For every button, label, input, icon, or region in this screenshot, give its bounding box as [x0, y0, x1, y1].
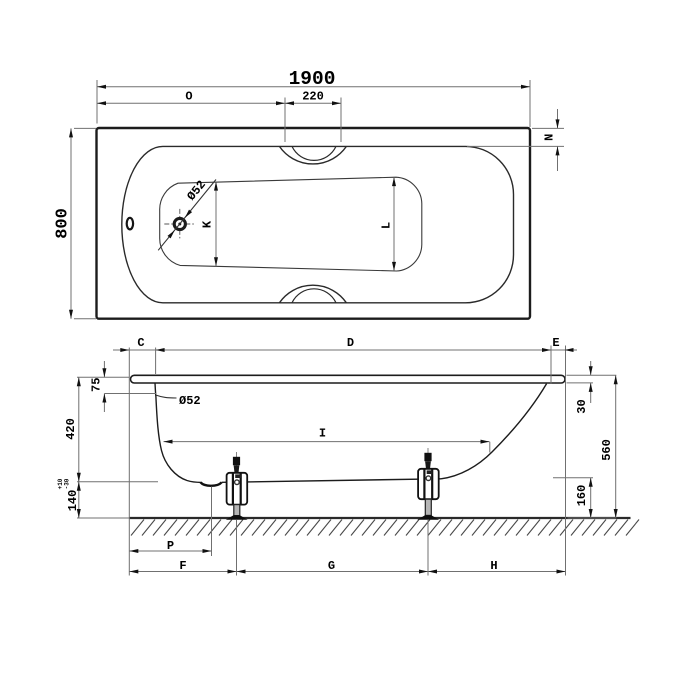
svg-text:1900: 1900 [289, 68, 336, 90]
svg-text:G: G [328, 559, 335, 573]
svg-text:140: 140 [66, 490, 80, 512]
svg-text:420: 420 [64, 418, 78, 440]
svg-text:D: D [347, 336, 354, 350]
svg-text:220: 220 [302, 90, 324, 104]
svg-text:H: H [490, 559, 497, 573]
svg-text:75: 75 [90, 378, 104, 392]
svg-text:800: 800 [54, 208, 73, 239]
svg-text:30: 30 [575, 399, 589, 413]
svg-text:I: I [319, 427, 326, 441]
svg-text:160: 160 [575, 485, 589, 507]
svg-text:-30: -30 [64, 478, 71, 489]
svg-text:O: O [185, 90, 192, 104]
svg-text:F: F [179, 559, 186, 573]
svg-text:Ø52: Ø52 [179, 394, 201, 408]
svg-text:E: E [552, 336, 559, 350]
svg-text:L: L [380, 222, 394, 229]
svg-text:560: 560 [600, 439, 614, 461]
svg-text:P: P [167, 539, 174, 553]
svg-text:K: K [201, 220, 215, 228]
svg-text:N: N [543, 134, 557, 141]
svg-text:C: C [137, 336, 144, 350]
